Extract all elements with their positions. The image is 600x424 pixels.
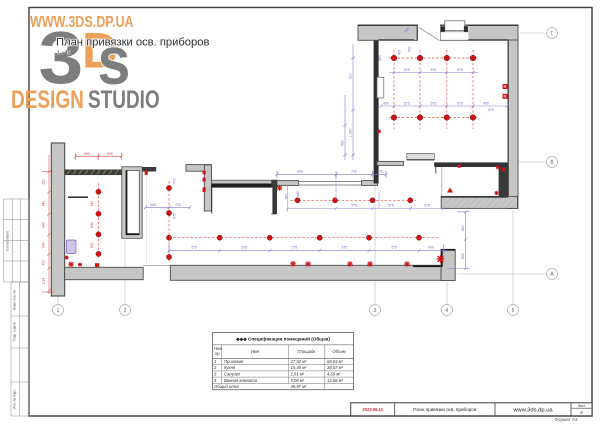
svg-text:Санузел: Санузел <box>224 372 241 377</box>
svg-text:640: 640 <box>90 222 94 228</box>
svg-text:Согласовано: Согласовано <box>6 231 10 252</box>
svg-text:690: 690 <box>107 152 113 156</box>
svg-text:720: 720 <box>175 203 181 207</box>
svg-text:575: 575 <box>457 68 463 72</box>
svg-text:www.3ds.dp.ua: www.3ds.dp.ua <box>512 408 553 414</box>
svg-text:1.180: 1.180 <box>348 129 352 138</box>
svg-text:Имя: Имя <box>251 349 260 354</box>
svg-text:575: 575 <box>291 246 297 250</box>
svg-text:Прихожая: Прихожая <box>224 359 244 364</box>
svg-text:445: 445 <box>296 191 300 197</box>
svg-text:Г: Г <box>551 31 554 37</box>
svg-text:пр: пр <box>215 351 220 356</box>
svg-text:4,69 м²: 4,69 м² <box>327 372 341 377</box>
svg-text:575: 575 <box>431 68 437 72</box>
svg-text:500: 500 <box>348 73 352 79</box>
svg-text:470: 470 <box>41 260 45 266</box>
svg-text:68,63 м²: 68,63 м² <box>327 359 344 364</box>
svg-text:DESIGN: DESIGN <box>11 85 84 113</box>
svg-text:1.94: 1.94 <box>41 278 45 285</box>
svg-text:640: 640 <box>41 222 45 228</box>
svg-text:1 : 45: 1 : 45 <box>57 51 71 57</box>
svg-text:49,97 м²: 49,97 м² <box>291 384 308 389</box>
svg-text:1: 1 <box>214 359 216 364</box>
svg-text:Ванная комната: Ванная комната <box>224 378 258 383</box>
svg-text:640: 640 <box>41 201 45 207</box>
svg-text:1,91 м²: 1,91 м² <box>291 372 305 377</box>
svg-text:450: 450 <box>398 49 402 55</box>
svg-text:Площадь: Площадь <box>297 349 315 354</box>
svg-text:4: 4 <box>446 308 449 314</box>
svg-text:Инв. № подл.: Инв. № подл. <box>13 389 17 409</box>
svg-text:640: 640 <box>90 242 94 248</box>
svg-text:650: 650 <box>408 46 412 52</box>
svg-text:Кухня: Кухня <box>224 365 236 370</box>
svg-text:575: 575 <box>457 102 463 106</box>
svg-text:575: 575 <box>391 246 397 250</box>
svg-text:590: 590 <box>340 140 344 146</box>
svg-text:575: 575 <box>431 102 437 106</box>
svg-text:675: 675 <box>173 213 177 219</box>
svg-text:2022.06.11: 2022.06.11 <box>362 407 383 412</box>
svg-text:Лист: Лист <box>578 404 586 408</box>
svg-text:План привязки осв. приборов: План привязки осв. приборов <box>413 407 477 412</box>
svg-text:575: 575 <box>191 246 197 250</box>
svg-text:575: 575 <box>351 203 357 207</box>
svg-text:575: 575 <box>404 102 410 106</box>
svg-text:15,48 м²: 15,48 м² <box>291 365 308 370</box>
svg-text:150: 150 <box>41 179 45 185</box>
svg-text:640: 640 <box>90 201 94 207</box>
svg-text:490: 490 <box>428 246 434 250</box>
svg-text:965: 965 <box>150 203 156 207</box>
svg-text:575: 575 <box>341 246 347 250</box>
svg-text:450: 450 <box>383 102 389 106</box>
svg-text:Общий итог: Общий итог <box>214 384 239 389</box>
svg-text:3: 3 <box>374 308 377 314</box>
svg-text:27,52 м²: 27,52 м² <box>290 359 308 364</box>
svg-text:575: 575 <box>404 68 410 72</box>
svg-text:450: 450 <box>378 55 382 61</box>
svg-text:1: 1 <box>57 308 60 314</box>
svg-text:190: 190 <box>377 170 383 174</box>
svg-text:575: 575 <box>488 108 494 112</box>
svg-text:План привязки осв. приборов: План привязки осв. приборов <box>56 37 209 49</box>
svg-text:5: 5 <box>512 308 515 314</box>
svg-text:700: 700 <box>173 178 177 184</box>
svg-text:700: 700 <box>351 170 357 174</box>
svg-text:2: 2 <box>124 308 127 314</box>
svg-text:Взам. инв. №: Взам. инв. № <box>13 290 17 310</box>
svg-text:38,07 м²: 38,07 м² <box>327 365 344 370</box>
svg-text:640: 640 <box>41 242 45 248</box>
svg-text:860: 860 <box>461 225 465 231</box>
svg-text:STUDIO: STUDIO <box>88 85 160 113</box>
svg-text:600: 600 <box>297 170 303 174</box>
svg-text:Формат А3: Формат А3 <box>554 417 578 422</box>
svg-text:◆◆◆ Спецификация помещений (Об: ◆◆◆ Спецификация помещений (Общая) <box>235 336 330 342</box>
svg-text:360: 360 <box>285 194 289 200</box>
svg-text:690: 690 <box>84 152 90 156</box>
svg-text:450: 450 <box>483 102 489 106</box>
svg-text:575: 575 <box>241 246 247 250</box>
svg-text:575: 575 <box>388 203 394 207</box>
svg-text:865: 865 <box>461 253 465 259</box>
svg-text:575: 575 <box>424 203 430 207</box>
svg-text:Подп. и дата: Подп. и дата <box>13 322 17 341</box>
svg-text:Объем: Объем <box>332 349 345 354</box>
svg-text:5,06 м²: 5,06 м² <box>291 378 305 383</box>
svg-text:12,68 м²: 12,68 м² <box>327 378 344 383</box>
